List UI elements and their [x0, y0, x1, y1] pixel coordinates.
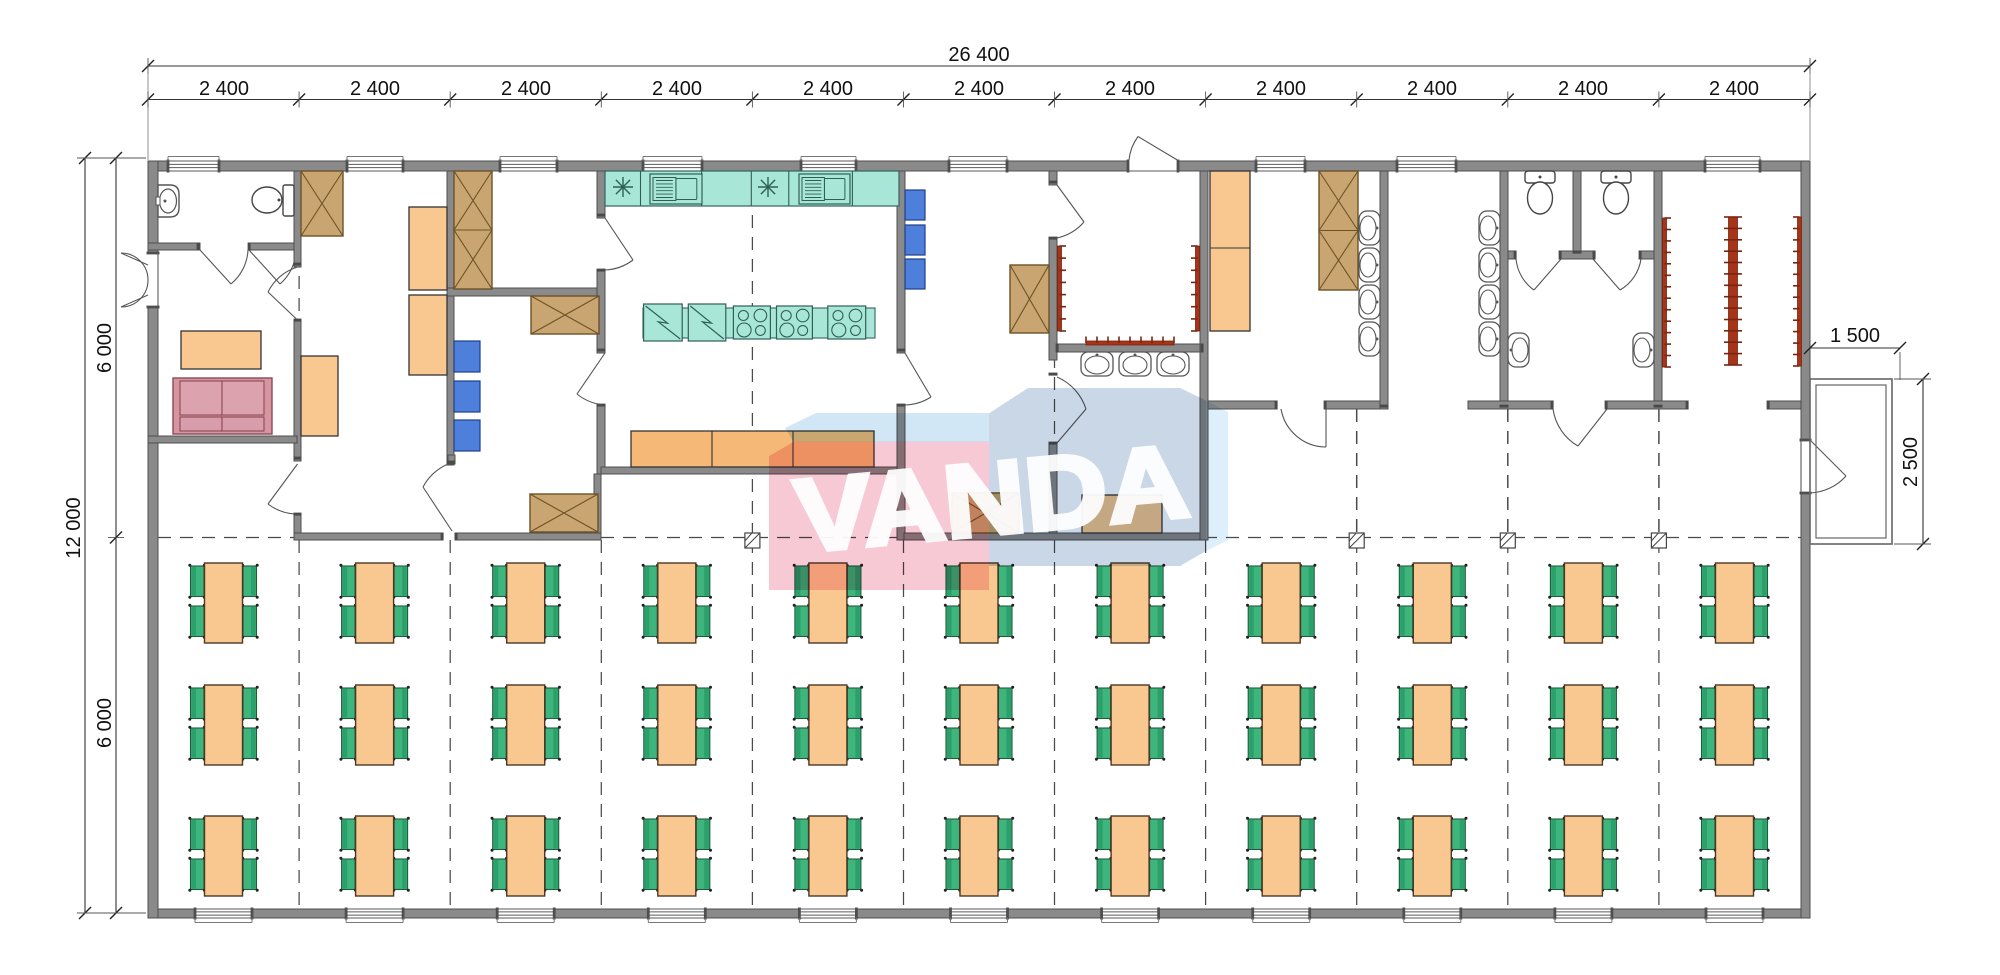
svg-text:2 400: 2 400 — [1105, 78, 1155, 100]
svg-text:1 500: 1 500 — [1830, 325, 1880, 347]
svg-text:26 400: 26 400 — [948, 44, 1009, 66]
svg-text:2 400: 2 400 — [1558, 78, 1608, 100]
svg-text:2 500: 2 500 — [1900, 437, 1922, 487]
svg-text:2 400: 2 400 — [501, 78, 551, 100]
svg-text:2 400: 2 400 — [1256, 78, 1306, 100]
svg-text:2 400: 2 400 — [1709, 78, 1759, 100]
svg-text:2 400: 2 400 — [199, 78, 249, 100]
svg-text:2 400: 2 400 — [350, 78, 400, 100]
svg-text:12 000: 12 000 — [63, 497, 85, 558]
svg-text:6 000: 6 000 — [94, 323, 116, 373]
svg-text:2 400: 2 400 — [652, 78, 702, 100]
svg-text:2 400: 2 400 — [954, 78, 1004, 100]
svg-text:2 400: 2 400 — [1407, 78, 1457, 100]
svg-text:6 000: 6 000 — [94, 698, 116, 748]
svg-text:2 400: 2 400 — [803, 78, 853, 100]
